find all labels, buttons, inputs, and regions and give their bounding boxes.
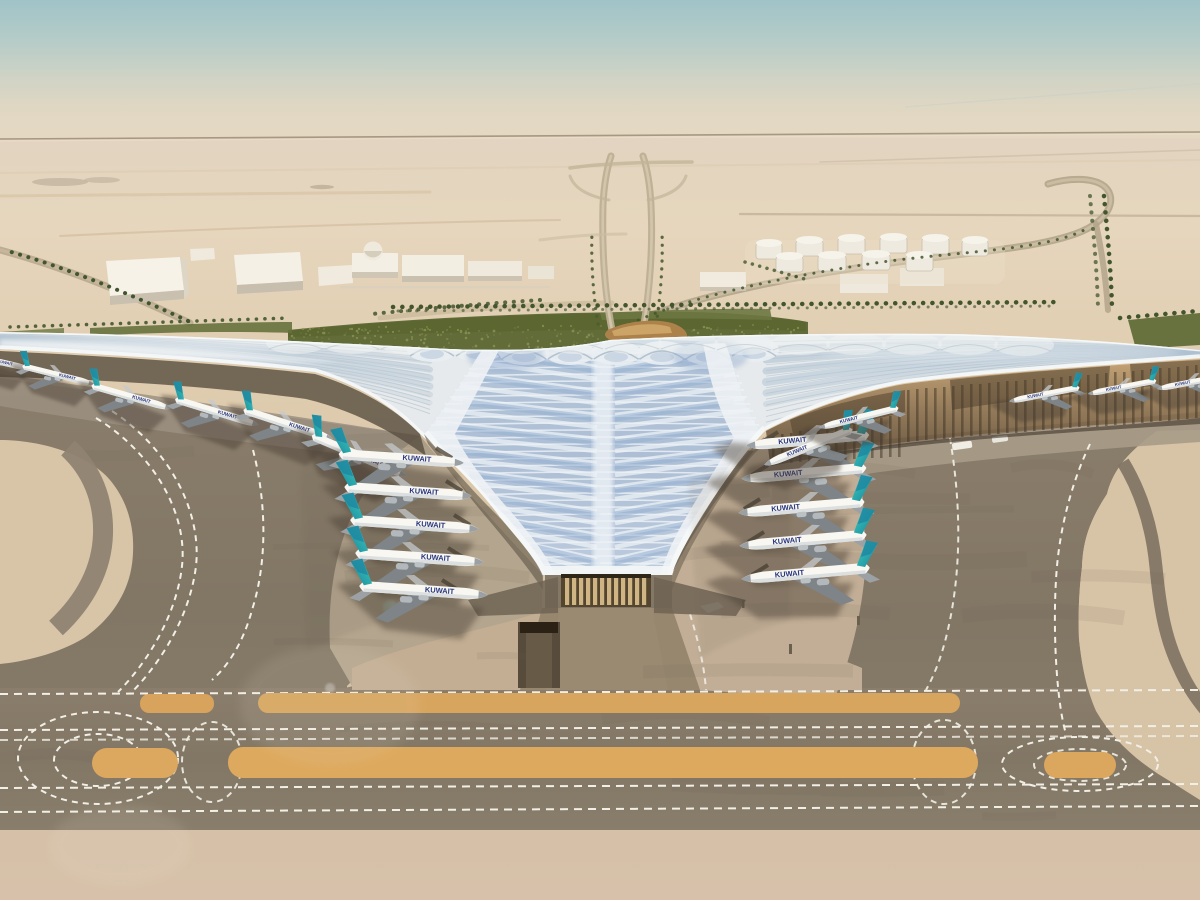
svg-text:KUWAIT: KUWAIT xyxy=(402,453,432,464)
